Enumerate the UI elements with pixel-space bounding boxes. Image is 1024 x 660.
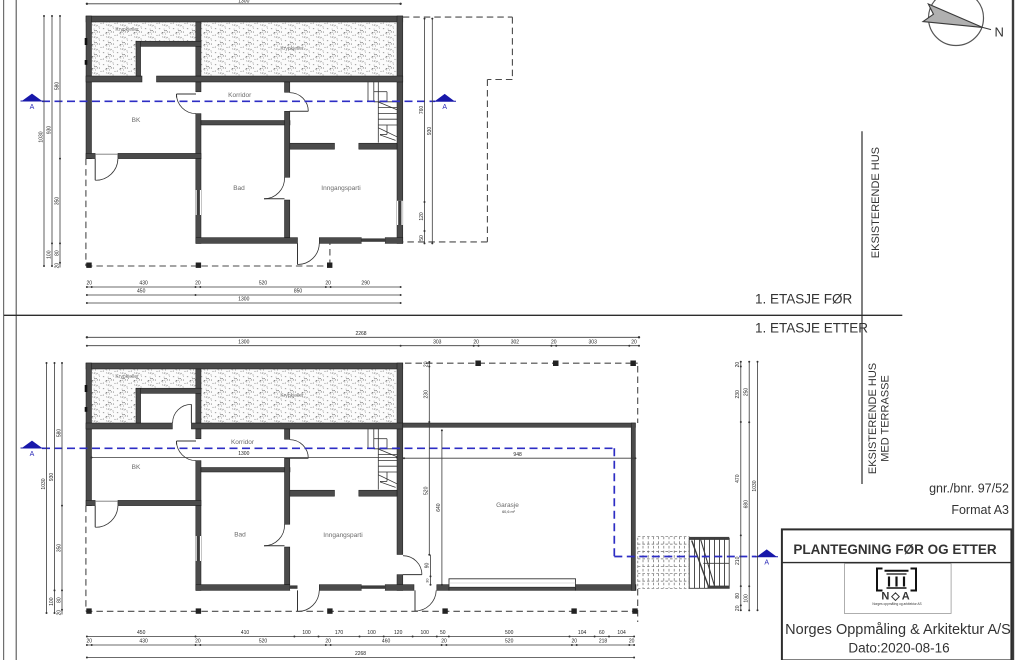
svg-text:120: 120 — [419, 212, 425, 221]
svg-text:460: 460 — [382, 639, 391, 645]
svg-text:1300: 1300 — [238, 451, 249, 457]
svg-text:80: 80 — [57, 597, 63, 603]
svg-text:120: 120 — [394, 630, 403, 636]
svg-text:350: 350 — [55, 197, 61, 206]
svg-text:580: 580 — [55, 82, 61, 91]
svg-text:Korridor: Korridor — [231, 439, 255, 446]
svg-text:20: 20 — [735, 362, 741, 368]
svg-text:N◇A: N◇A — [881, 591, 911, 603]
svg-text:A: A — [764, 560, 769, 567]
svg-text:Inngangsparti: Inngangsparti — [321, 185, 360, 192]
svg-text:50: 50 — [419, 235, 425, 241]
svg-text:60,6 m²: 60,6 m² — [502, 510, 516, 514]
svg-text:A: A — [30, 104, 35, 111]
svg-text:302: 302 — [511, 339, 520, 345]
svg-text:230: 230 — [735, 390, 741, 399]
svg-text:20: 20 — [572, 639, 578, 645]
svg-text:250: 250 — [744, 388, 750, 397]
svg-text:500: 500 — [505, 630, 514, 636]
svg-text:Norges oppmåling og arkitektur: Norges oppmåling og arkitektur AS — [872, 602, 921, 606]
svg-text:80: 80 — [735, 593, 741, 599]
svg-text:430: 430 — [139, 639, 148, 645]
svg-text:MED TERRASSE: MED TERRASSE — [880, 375, 892, 462]
svg-text:218: 218 — [599, 639, 608, 645]
svg-text:Krypkjeller: Krypkjeller — [115, 27, 139, 33]
svg-text:1300: 1300 — [238, 339, 249, 345]
svg-text:20: 20 — [195, 639, 201, 645]
svg-text:Bad: Bad — [234, 532, 246, 539]
svg-text:Bad: Bad — [233, 185, 245, 192]
svg-text:100: 100 — [49, 597, 55, 606]
svg-text:20: 20 — [55, 263, 61, 269]
svg-text:410: 410 — [241, 630, 250, 636]
svg-text:60: 60 — [599, 630, 605, 636]
svg-text:640: 640 — [436, 503, 442, 512]
svg-text:20: 20 — [551, 339, 557, 345]
svg-text:1030: 1030 — [39, 131, 45, 142]
svg-text:1. ETASJE ETTER: 1. ETASJE ETTER — [755, 321, 868, 336]
svg-text:470: 470 — [735, 474, 741, 483]
svg-text:230: 230 — [423, 390, 429, 399]
svg-text:Garasje: Garasje — [496, 502, 519, 509]
svg-text:850: 850 — [294, 289, 303, 295]
svg-text:680: 680 — [744, 500, 750, 509]
svg-text:350: 350 — [57, 544, 63, 553]
svg-text:1030: 1030 — [41, 478, 47, 489]
svg-text:290: 290 — [361, 281, 370, 287]
svg-text:2268: 2268 — [355, 331, 366, 337]
svg-text:580: 580 — [57, 429, 63, 438]
svg-text:20: 20 — [473, 339, 479, 345]
svg-text:20: 20 — [441, 639, 447, 645]
svg-text:104: 104 — [578, 630, 587, 636]
svg-text:520: 520 — [259, 281, 268, 287]
svg-text:210: 210 — [735, 556, 741, 565]
svg-text:930: 930 — [427, 127, 433, 136]
svg-text:20: 20 — [735, 605, 741, 611]
svg-text:303: 303 — [433, 339, 442, 345]
svg-text:BK: BK — [132, 464, 141, 471]
svg-text:20: 20 — [87, 639, 93, 645]
svg-text:20: 20 — [629, 639, 635, 645]
svg-text:1300: 1300 — [238, 0, 249, 5]
svg-text:170: 170 — [335, 630, 344, 636]
svg-text:Krypkjeller: Krypkjeller — [280, 393, 304, 399]
svg-text:520: 520 — [505, 639, 514, 645]
svg-text:80: 80 — [55, 250, 61, 256]
svg-text:1300: 1300 — [238, 297, 249, 303]
svg-text:20: 20 — [423, 361, 429, 367]
svg-text:450: 450 — [137, 630, 146, 636]
svg-text:1030: 1030 — [752, 480, 758, 491]
svg-text:100: 100 — [744, 594, 750, 603]
svg-text:430: 430 — [139, 281, 148, 287]
svg-text:100: 100 — [421, 630, 430, 636]
svg-text:EKSISTERENDE HUS: EKSISTERENDE HUS — [867, 363, 879, 474]
svg-text:Format A3: Format A3 — [951, 503, 1009, 517]
svg-text:760: 760 — [419, 106, 425, 115]
svg-text:gnr./bnr. 97/52: gnr./bnr. 97/52 — [929, 482, 1009, 496]
svg-text:100: 100 — [367, 630, 376, 636]
svg-text:50: 50 — [440, 630, 446, 636]
svg-text:520: 520 — [423, 486, 429, 495]
svg-text:20: 20 — [57, 610, 63, 616]
svg-text:EKSISTERENDE HUS: EKSISTERENDE HUS — [870, 147, 882, 258]
svg-text:BK: BK — [132, 117, 141, 124]
svg-text:104: 104 — [617, 630, 626, 636]
svg-text:20: 20 — [87, 281, 93, 287]
svg-text:20: 20 — [325, 281, 331, 287]
svg-text:100: 100 — [302, 630, 311, 636]
svg-text:520: 520 — [259, 639, 268, 645]
svg-text:20: 20 — [631, 339, 637, 345]
svg-text:Dato:2020-08-16: Dato:2020-08-16 — [848, 641, 949, 656]
svg-text:PLANTEGNING FØR OG ETTER: PLANTEGNING FØR OG ETTER — [793, 542, 997, 557]
svg-text:N: N — [995, 25, 1004, 40]
svg-text:948: 948 — [513, 452, 522, 458]
svg-text:30: 30 — [425, 578, 430, 583]
svg-text:Korridor: Korridor — [228, 92, 252, 99]
svg-text:303: 303 — [589, 339, 598, 345]
svg-text:20: 20 — [325, 639, 331, 645]
svg-text:A: A — [30, 451, 35, 458]
svg-text:Inngangsparti: Inngangsparti — [323, 532, 362, 539]
svg-text:A: A — [442, 104, 447, 111]
svg-text:Krypkjeller: Krypkjeller — [280, 46, 304, 52]
svg-text:1. ETASJE FØR: 1. ETASJE FØR — [755, 292, 853, 307]
svg-text:90: 90 — [425, 563, 431, 569]
svg-text:930: 930 — [49, 473, 55, 482]
svg-text:100: 100 — [47, 250, 53, 259]
svg-text:2268: 2268 — [355, 651, 366, 657]
svg-text:930: 930 — [47, 126, 53, 135]
svg-text:Krypkjeller: Krypkjeller — [115, 374, 139, 380]
svg-text:450: 450 — [137, 289, 146, 295]
svg-text:20: 20 — [195, 281, 201, 287]
svg-text:Norges Oppmåling & Arkitektur: Norges Oppmåling & Arkitektur A/S — [785, 622, 1011, 638]
